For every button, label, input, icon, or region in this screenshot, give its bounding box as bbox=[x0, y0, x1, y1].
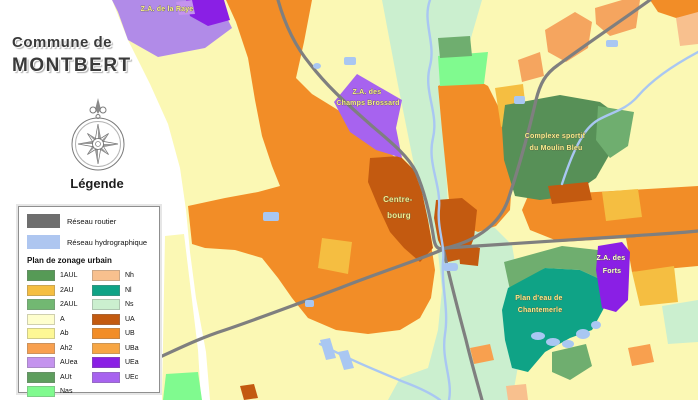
zone-swatch bbox=[27, 357, 55, 368]
zone-swatch bbox=[27, 299, 55, 310]
compass-rose-icon bbox=[62, 94, 134, 186]
zone-swatch bbox=[27, 328, 55, 339]
zone-code: 2AU bbox=[60, 287, 74, 294]
legend-item: 2AU bbox=[27, 285, 89, 296]
zone-code: AUt bbox=[60, 374, 72, 381]
zone-swatch bbox=[27, 386, 55, 397]
road-network-swatch bbox=[27, 214, 60, 228]
zonage-title: Plan de zonage urbain bbox=[27, 256, 154, 265]
legend-item-label: Réseau routier bbox=[67, 217, 116, 226]
legend-item: Nas bbox=[27, 386, 89, 397]
legend-item: AUea bbox=[27, 357, 89, 368]
zone-code: Nas bbox=[60, 388, 72, 395]
legend-item: AUt bbox=[27, 372, 89, 383]
zone-swatch bbox=[92, 314, 120, 325]
zone-code: UBa bbox=[125, 345, 139, 352]
legend-item: Ns bbox=[92, 299, 154, 310]
zone-code: A bbox=[60, 316, 65, 323]
zone-swatch bbox=[92, 299, 120, 310]
zone-code: UEc bbox=[125, 374, 138, 381]
zone-code: Ab bbox=[60, 330, 69, 337]
zone-swatch bbox=[27, 343, 55, 354]
zone-swatch bbox=[27, 285, 55, 296]
commune-label: Commune de bbox=[12, 34, 172, 51]
zone-swatch bbox=[92, 285, 120, 296]
zone-code: Nh bbox=[125, 272, 134, 279]
zone-swatch bbox=[27, 372, 55, 383]
commune-name: MONTBERT bbox=[12, 55, 172, 77]
legend-item-label: Réseau hydrographique bbox=[67, 238, 147, 247]
legend-item: 1AUL bbox=[27, 270, 89, 281]
legend-item: A bbox=[27, 314, 89, 325]
legend-item: UA bbox=[92, 314, 154, 325]
zone-swatch bbox=[92, 328, 120, 339]
legend-item: Nh bbox=[92, 270, 154, 281]
legend-item-reseau-routier: Réseau routier bbox=[27, 214, 154, 228]
zone-code: Nl bbox=[125, 287, 132, 294]
zone-code: 1AUL bbox=[60, 272, 78, 279]
zone-code: UA bbox=[125, 316, 135, 323]
legend-item: Ah2 bbox=[27, 343, 89, 354]
zone-swatch bbox=[92, 343, 120, 354]
zone-swatch bbox=[27, 270, 55, 281]
map-title: Commune de MONTBERT bbox=[12, 34, 172, 77]
legend-item: UBa bbox=[92, 343, 154, 354]
zone-code: AUea bbox=[60, 359, 78, 366]
zonage-column-right: Nh Nl Ns UA UB UBa UEa UEc bbox=[92, 270, 154, 397]
zone-code: Ns bbox=[125, 301, 134, 308]
map-document: Z.A. de la Raye Z.A. des Champs Brossard… bbox=[0, 0, 698, 400]
zone-za-forts bbox=[596, 242, 630, 312]
zone-swatch bbox=[92, 270, 120, 281]
zone-code: Ah2 bbox=[60, 345, 72, 352]
zone-code: 2AUL bbox=[60, 301, 78, 308]
zone-nas-bottom-left bbox=[163, 372, 202, 400]
zone-swatch bbox=[27, 314, 55, 325]
zone-swatch bbox=[92, 372, 120, 383]
zone-code: UB bbox=[125, 330, 135, 337]
legend-item: 2AUL bbox=[27, 299, 89, 310]
legend-heading: Légende bbox=[0, 176, 194, 191]
legend-box: Réseau routier Réseau hydrographique Pla… bbox=[18, 206, 160, 393]
zone-swatch bbox=[92, 357, 120, 368]
legend-item-reseau-hydrographique: Réseau hydrographique bbox=[27, 235, 154, 249]
hydro-network-swatch bbox=[27, 235, 60, 249]
zonage-column-left: 1AUL 2AU 2AUL A Ab Ah2 AUea AUt Nas bbox=[27, 270, 89, 397]
zone-code: UEa bbox=[125, 359, 139, 366]
legend-item: Ab bbox=[27, 328, 89, 339]
legend-item: UEa bbox=[92, 357, 154, 368]
compass-star bbox=[78, 124, 118, 164]
legend-item: UEc bbox=[92, 372, 154, 383]
label-za-la-raye: Z.A. de la Raye bbox=[141, 6, 194, 13]
zonage-grid: 1AUL 2AU 2AUL A Ab Ah2 AUea AUt Nas Nh N… bbox=[27, 270, 154, 397]
legend-item: UB bbox=[92, 328, 154, 339]
legend-item: Nl bbox=[92, 285, 154, 296]
